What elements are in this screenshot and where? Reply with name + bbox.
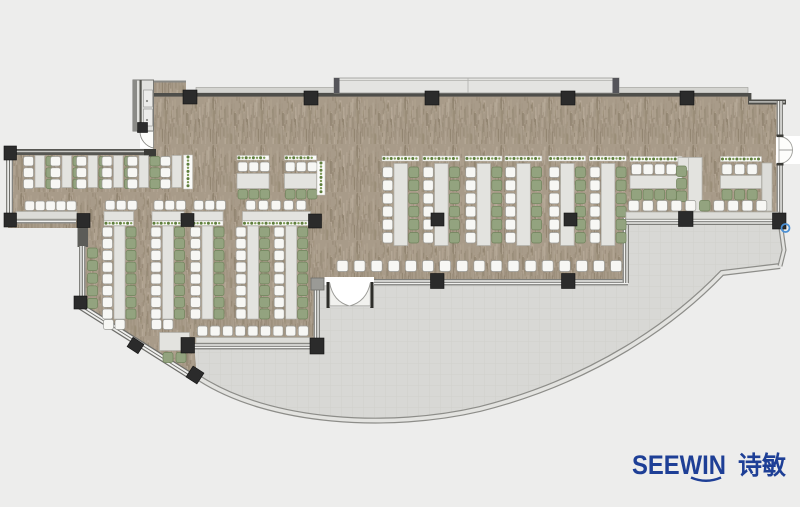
svg-text:SEEWIN: SEEWIN bbox=[632, 450, 726, 480]
svg-text:诗敏: 诗敏 bbox=[738, 451, 786, 480]
